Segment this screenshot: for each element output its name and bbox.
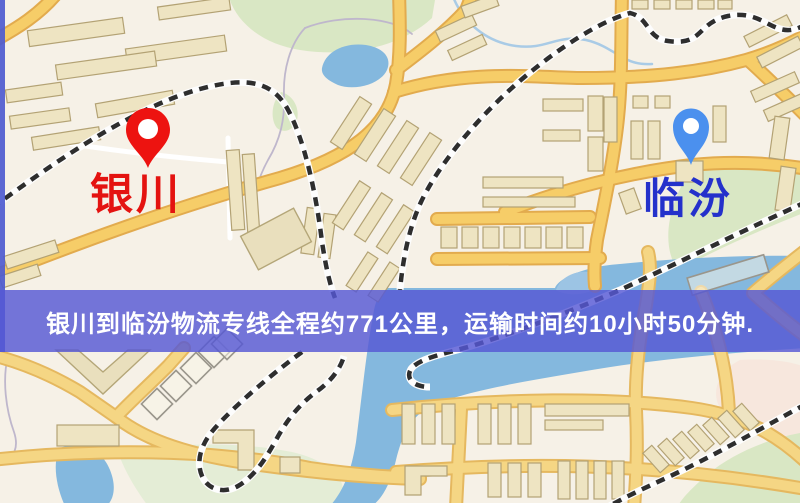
route-info-text: 银川到临汾物流专线全程约771公里，运输时间约10小时50分钟. — [46, 304, 754, 339]
destination-pin-icon — [668, 105, 714, 167]
route-info-banner: 银川到临汾物流专线全程约771公里，运输时间约10小时50分钟. — [0, 290, 800, 352]
origin-city-label: 银川 — [66, 174, 206, 217]
map-canvas — [0, 0, 800, 503]
map-screenshot: 银川 临汾 银川到临汾物流专线全程约771公里，运输时间约10小时50分钟. — [0, 0, 800, 503]
destination-city-label: 临汾 — [618, 178, 758, 220]
origin-pin-icon — [119, 104, 177, 170]
